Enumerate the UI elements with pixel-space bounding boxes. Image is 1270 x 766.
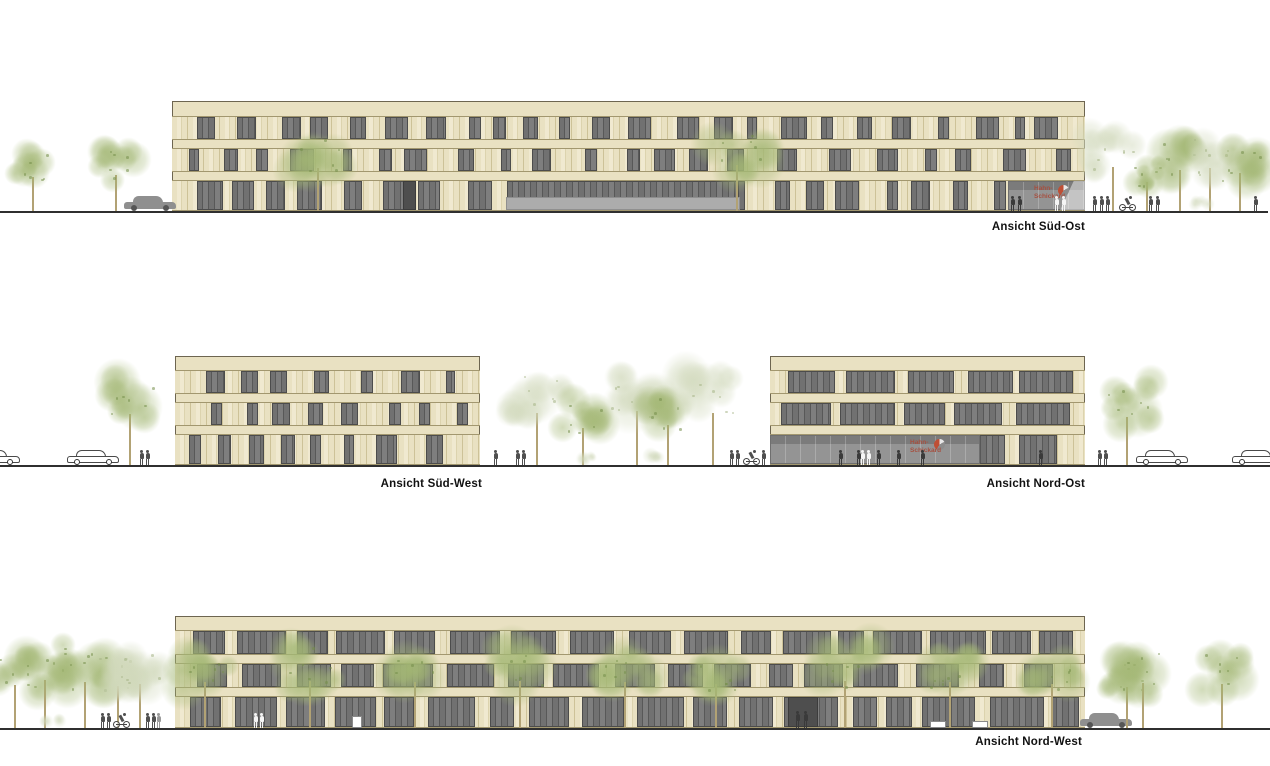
facade-floor-band bbox=[175, 402, 480, 426]
tree-canopy-blob bbox=[661, 350, 712, 401]
tree-foliage-dot bbox=[708, 689, 711, 692]
tree-foliage-dot bbox=[1097, 159, 1100, 162]
street-furniture bbox=[972, 721, 988, 728]
tree-foliage-dot bbox=[70, 664, 73, 667]
tree-foliage-dot bbox=[1230, 172, 1233, 175]
window-group bbox=[829, 149, 852, 171]
person-figure bbox=[144, 450, 151, 465]
window-group bbox=[1003, 149, 1026, 171]
window-group bbox=[197, 181, 223, 210]
tree-foliage-dot bbox=[721, 159, 724, 162]
person-figure bbox=[1102, 450, 1109, 465]
tree-foliage-dot bbox=[122, 396, 125, 399]
bush-blob bbox=[1195, 195, 1208, 208]
elevation-sheet: Ansicht Süd-Ost Ansicht Süd-West Ansicht… bbox=[0, 0, 1270, 766]
window-group bbox=[376, 435, 396, 464]
ground-line bbox=[0, 211, 1268, 213]
window-group bbox=[404, 149, 428, 171]
tree-foliage-dot bbox=[46, 154, 49, 157]
cyclist-head bbox=[1129, 196, 1132, 199]
person-figure bbox=[1009, 196, 1016, 211]
bush-blob bbox=[39, 714, 53, 728]
tree-foliage-dot bbox=[525, 655, 528, 658]
window-group bbox=[197, 117, 215, 139]
cyclist-head bbox=[753, 450, 756, 453]
tree bbox=[687, 127, 787, 211]
window-group bbox=[469, 117, 481, 139]
street-furniture bbox=[352, 716, 362, 728]
tree-canopy-blob bbox=[705, 360, 736, 391]
tree-canopy-blob bbox=[1014, 651, 1060, 697]
window-group bbox=[501, 149, 511, 171]
view-label-sued-ost: Ansicht Süd-Ost bbox=[992, 221, 1085, 233]
tree-canopy-blob bbox=[1081, 158, 1107, 184]
person-figure bbox=[1053, 196, 1060, 211]
window-group bbox=[769, 664, 794, 687]
tree-foliage-dot bbox=[128, 682, 131, 685]
car bbox=[1232, 449, 1270, 465]
tree-foliage-dot bbox=[421, 661, 424, 664]
tree-foliage-dot bbox=[942, 683, 945, 686]
person-figure bbox=[155, 713, 162, 728]
tree-foliage-dot bbox=[541, 684, 544, 687]
window-group bbox=[892, 117, 911, 139]
tree-canopy-blob bbox=[742, 129, 784, 171]
window-group bbox=[1019, 371, 1073, 393]
window-group bbox=[925, 149, 937, 171]
window-group bbox=[628, 117, 651, 139]
window-group bbox=[559, 117, 570, 139]
tree-foliage-dot bbox=[312, 647, 315, 650]
tree-canopy-blob bbox=[307, 146, 350, 189]
tree-foliage-dot bbox=[519, 677, 522, 680]
tree-foliage-dot bbox=[124, 658, 127, 661]
window-group bbox=[654, 149, 675, 171]
tree-canopy-blob bbox=[274, 672, 304, 702]
tree bbox=[577, 644, 673, 728]
window-group bbox=[468, 181, 492, 210]
ground-line bbox=[0, 465, 770, 467]
window-group bbox=[385, 117, 408, 139]
tree bbox=[902, 644, 998, 728]
person-figure bbox=[520, 450, 527, 465]
tree-foliage-dot bbox=[614, 676, 617, 679]
window-group bbox=[781, 403, 831, 425]
window-group bbox=[314, 371, 329, 393]
window-group bbox=[840, 403, 895, 425]
tree-foliage-dot bbox=[729, 679, 732, 682]
tree-canopy-blob bbox=[160, 663, 208, 711]
cyclist bbox=[113, 714, 131, 728]
tree-foliage-dot bbox=[193, 666, 196, 669]
tree-foliage-dot bbox=[603, 674, 606, 677]
tree-foliage-dot bbox=[845, 686, 848, 689]
window-group bbox=[361, 371, 373, 393]
tree-foliage-dot bbox=[712, 390, 715, 393]
window-group bbox=[379, 149, 391, 171]
person-figure bbox=[1016, 196, 1023, 211]
tree bbox=[367, 644, 463, 728]
person-figure bbox=[492, 450, 499, 465]
tree-foliage-dot bbox=[826, 663, 829, 666]
tree-foliage-dot bbox=[151, 654, 154, 657]
window-group bbox=[446, 371, 455, 393]
person-figure bbox=[802, 711, 809, 728]
window-group bbox=[788, 371, 835, 393]
tree-foliage-dot bbox=[113, 177, 116, 180]
tree-canopy-blob bbox=[114, 137, 143, 166]
bush bbox=[36, 714, 68, 728]
tree-canopy-blob bbox=[722, 653, 754, 685]
tree-foliage-dot bbox=[289, 672, 292, 675]
window-group bbox=[341, 403, 358, 425]
window-group bbox=[994, 181, 1006, 210]
cyclist-head bbox=[123, 713, 126, 716]
tree-foliage-dot bbox=[1093, 168, 1096, 171]
tree-foliage-dot bbox=[1104, 148, 1107, 151]
tree-foliage-dot bbox=[212, 679, 215, 682]
window-group bbox=[857, 117, 872, 139]
window-group bbox=[401, 371, 420, 393]
tree-canopy-blob bbox=[323, 668, 346, 691]
tree-trunk bbox=[712, 413, 714, 465]
tree-foliage-dot bbox=[732, 412, 735, 415]
window-group bbox=[887, 181, 898, 210]
building-elevation: Hahn-Schickard bbox=[770, 356, 1085, 465]
person-figure bbox=[865, 450, 872, 465]
car-body bbox=[1232, 456, 1270, 463]
person-leg bbox=[806, 721, 808, 728]
window-group bbox=[532, 149, 551, 171]
window-group bbox=[627, 149, 639, 171]
tree-foliage-dot bbox=[152, 387, 155, 390]
tree-foliage-dot bbox=[113, 154, 116, 157]
tree-foliage-dot bbox=[29, 162, 32, 165]
tree-foliage-dot bbox=[324, 139, 327, 142]
window-group bbox=[908, 371, 955, 393]
facade-floor-band bbox=[175, 370, 480, 394]
tree-foliage-dot bbox=[300, 148, 303, 151]
tree bbox=[157, 644, 253, 728]
tree-foliage-dot bbox=[569, 405, 572, 408]
window-group bbox=[206, 371, 225, 393]
window-group bbox=[877, 149, 898, 171]
person-figure bbox=[837, 450, 844, 465]
tree-foliage-dot bbox=[1205, 654, 1208, 657]
facade-floor-band bbox=[770, 402, 1085, 426]
logo-text-line1: Hahn- bbox=[910, 439, 928, 446]
bush bbox=[642, 452, 672, 466]
window-group bbox=[1016, 403, 1071, 425]
tree bbox=[0, 149, 67, 211]
window-group bbox=[953, 181, 967, 210]
tree-foliage-dot bbox=[725, 411, 728, 414]
window-group bbox=[211, 403, 222, 425]
window-group bbox=[835, 181, 859, 210]
person-figure bbox=[1104, 196, 1111, 211]
tree-canopy-blob bbox=[584, 652, 629, 697]
window-group bbox=[310, 435, 321, 464]
tree-canopy-blob bbox=[101, 378, 130, 407]
bike-frame bbox=[116, 724, 127, 725]
tree-canopy-blob bbox=[512, 634, 545, 667]
entrance-door bbox=[403, 181, 416, 210]
view-label-sued-west: Ansicht Süd-West bbox=[381, 478, 482, 490]
tree-foliage-dot bbox=[611, 407, 614, 410]
tree-foliage-dot bbox=[624, 671, 627, 674]
window-group bbox=[1015, 117, 1024, 139]
tree-foliage-dot bbox=[126, 156, 129, 159]
tree-canopy-blob bbox=[624, 647, 655, 678]
window-group bbox=[523, 117, 538, 139]
tree-foliage-dot bbox=[1219, 663, 1222, 666]
building-elevation bbox=[175, 356, 480, 465]
window-group bbox=[458, 149, 474, 171]
person-figure bbox=[1154, 196, 1161, 211]
window-group bbox=[585, 149, 597, 171]
person-figure bbox=[1091, 196, 1098, 211]
tree-foliage-dot bbox=[1147, 406, 1150, 409]
tree bbox=[260, 642, 360, 728]
tree-foliage-dot bbox=[700, 665, 703, 668]
window-group bbox=[806, 181, 824, 210]
bike-frame bbox=[746, 461, 757, 462]
cyclist bbox=[743, 451, 761, 465]
window-group bbox=[426, 435, 443, 464]
window-group bbox=[968, 371, 1013, 393]
tree-foliage-dot bbox=[126, 169, 129, 172]
person-figure bbox=[919, 450, 926, 465]
tree bbox=[1176, 648, 1268, 728]
window-group bbox=[954, 403, 1003, 425]
tree-foliage-dot bbox=[1241, 151, 1244, 154]
person-figure bbox=[895, 450, 902, 465]
tree-foliage-dot bbox=[1057, 688, 1060, 691]
window-group bbox=[419, 403, 430, 425]
person-figure bbox=[760, 450, 767, 465]
bush bbox=[1184, 197, 1216, 211]
person-figure bbox=[105, 713, 112, 728]
tree-foliage-dot bbox=[651, 416, 654, 419]
tree-trunk bbox=[1112, 167, 1114, 211]
tree-foliage-dot bbox=[958, 675, 961, 678]
tree-foliage-dot bbox=[947, 677, 950, 680]
bush-blob bbox=[588, 453, 597, 462]
window-group bbox=[270, 371, 287, 393]
tree-foliage-dot bbox=[411, 664, 414, 667]
window-group bbox=[821, 117, 832, 139]
tree bbox=[670, 648, 762, 728]
window-group bbox=[846, 371, 894, 393]
ground-line bbox=[0, 728, 1270, 730]
person-figure bbox=[734, 450, 741, 465]
window-group bbox=[493, 117, 507, 139]
tree-foliage-dot bbox=[617, 386, 620, 389]
tree-foliage-dot bbox=[309, 170, 312, 173]
person-body bbox=[796, 714, 800, 721]
tree-foliage-dot bbox=[759, 158, 762, 161]
tree bbox=[78, 145, 154, 211]
person-leg bbox=[798, 721, 800, 728]
tree-foliage-dot bbox=[41, 179, 44, 182]
tree bbox=[1075, 377, 1179, 465]
window-group bbox=[241, 371, 258, 393]
tree-foliage-dot bbox=[533, 403, 536, 406]
window-group bbox=[247, 403, 258, 425]
tree bbox=[470, 642, 570, 728]
view-label-nord-west: Ansicht Nord-West bbox=[975, 736, 1082, 748]
tree-foliage-dot bbox=[325, 681, 328, 684]
tree-foliage-dot bbox=[692, 395, 695, 398]
bike-frame bbox=[1122, 207, 1133, 208]
window-group bbox=[426, 117, 446, 139]
tree-canopy-blob bbox=[1132, 374, 1161, 403]
window-group bbox=[389, 403, 401, 425]
window-group bbox=[272, 403, 289, 425]
bush-blob bbox=[52, 714, 66, 728]
tree-canopy-blob bbox=[495, 397, 525, 427]
tree-foliage-dot bbox=[754, 146, 757, 149]
window-group bbox=[249, 435, 264, 464]
window-group bbox=[911, 181, 930, 210]
cyclist bbox=[1119, 197, 1137, 211]
person-figure bbox=[875, 450, 882, 465]
window-group bbox=[189, 149, 199, 171]
person-figure bbox=[794, 711, 801, 728]
tree-foliage-dot bbox=[1227, 683, 1230, 686]
window-group bbox=[237, 117, 256, 139]
window-group bbox=[344, 435, 354, 464]
view-label-nord-ost: Ansicht Nord-Ost bbox=[987, 478, 1085, 490]
tree-foliage-dot bbox=[218, 663, 221, 666]
tree-canopy-blob bbox=[382, 659, 427, 704]
tree-canopy-blob bbox=[1236, 147, 1267, 178]
tree-canopy-blob bbox=[1108, 659, 1143, 694]
facade-floor-band bbox=[770, 370, 1085, 394]
bush bbox=[575, 452, 605, 466]
window-group bbox=[256, 149, 268, 171]
tree-foliage-dot bbox=[832, 670, 835, 673]
tree-foliage-dot bbox=[1222, 180, 1225, 183]
window-group bbox=[232, 181, 254, 210]
person-figure bbox=[1060, 196, 1067, 211]
ground-line bbox=[770, 465, 1270, 467]
window-group bbox=[281, 435, 296, 464]
window-group bbox=[938, 117, 949, 139]
tree-foliage-dot bbox=[510, 660, 513, 663]
tree-foliage-dot bbox=[831, 680, 834, 683]
tree-foliage-dot bbox=[29, 176, 32, 179]
person-figure bbox=[1037, 450, 1044, 465]
facade-floor-band bbox=[175, 434, 480, 465]
person-figure bbox=[258, 713, 265, 728]
person-body bbox=[804, 714, 808, 721]
tree-foliage-dot bbox=[523, 660, 526, 663]
tree-canopy-blob bbox=[100, 167, 125, 192]
street-furniture bbox=[930, 721, 946, 728]
tree-foliage-dot bbox=[751, 135, 754, 138]
tree-foliage-dot bbox=[1259, 156, 1262, 159]
window-group bbox=[592, 117, 611, 139]
tree-canopy-blob bbox=[692, 653, 719, 680]
tree-foliage-dot bbox=[857, 665, 860, 668]
window-group bbox=[1034, 117, 1057, 139]
window-group bbox=[418, 181, 440, 210]
window-group bbox=[308, 403, 323, 425]
tree-canopy-blob bbox=[120, 650, 162, 692]
window-group bbox=[457, 403, 468, 425]
tree-canopy-blob bbox=[45, 664, 77, 696]
tree-canopy-blob bbox=[914, 642, 957, 685]
tree bbox=[78, 373, 182, 465]
window-group bbox=[224, 149, 238, 171]
logo-text-line1: Hahn- bbox=[1034, 185, 1052, 192]
tree-foliage-dot bbox=[750, 141, 753, 144]
window-group bbox=[976, 117, 999, 139]
tree bbox=[795, 642, 895, 728]
window-group bbox=[218, 435, 231, 464]
window-group bbox=[904, 403, 945, 425]
tree bbox=[272, 133, 364, 211]
window-group bbox=[383, 181, 406, 210]
tree-foliage-dot bbox=[1122, 390, 1125, 393]
tree-foliage-dot bbox=[24, 173, 27, 176]
tree-foliage-dot bbox=[930, 686, 933, 689]
window-group bbox=[955, 149, 972, 171]
car bbox=[0, 449, 20, 465]
window-group bbox=[189, 435, 201, 464]
tree-foliage-dot bbox=[1141, 657, 1144, 660]
tree-foliage-dot bbox=[335, 169, 338, 172]
person-figure bbox=[1147, 196, 1154, 211]
person-figure bbox=[1252, 196, 1259, 211]
tree-canopy-blob bbox=[1206, 673, 1240, 707]
